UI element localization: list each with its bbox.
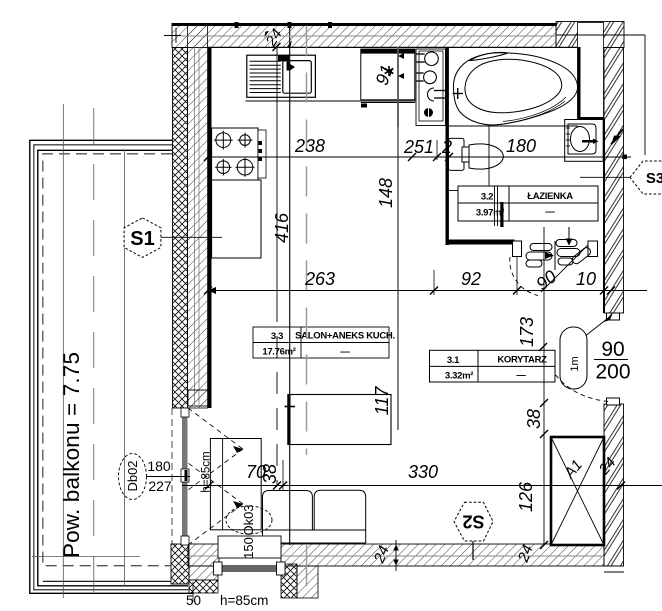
svg-text:251: 251 — [403, 137, 434, 157]
svg-text:SALON+ANEKS KUCH.: SALON+ANEKS KUCH. — [295, 331, 395, 342]
svg-text:238: 238 — [294, 136, 325, 156]
svg-text:ŁAZIENKA: ŁAZIENKA — [527, 191, 573, 202]
svg-text:2: 2 — [441, 137, 452, 157]
svg-text:38: 38 — [524, 409, 544, 429]
svg-text:173: 173 — [517, 317, 537, 347]
svg-text:S3: S3 — [646, 170, 662, 187]
svg-text:h=85cm: h=85cm — [220, 593, 268, 608]
svg-text:117: 117 — [372, 386, 392, 416]
svg-text:3.1: 3.1 — [447, 355, 460, 366]
svg-text:KORYTARZ: KORYTARZ — [497, 355, 547, 366]
svg-text:17.76m²: 17.76m² — [262, 347, 295, 358]
svg-text:50: 50 — [186, 593, 201, 608]
svg-text:90: 90 — [601, 338, 624, 361]
svg-text:3.32m²: 3.32m² — [445, 371, 473, 382]
svg-text:180: 180 — [506, 136, 536, 156]
svg-text:150: 150 — [241, 537, 256, 559]
svg-text:Ok03: Ok03 — [241, 504, 256, 535]
svg-text:3.2: 3.2 — [481, 192, 493, 203]
svg-text:Db02: Db02 — [125, 460, 140, 491]
svg-text:10: 10 — [576, 269, 596, 289]
svg-text:h=85cm: h=85cm — [201, 451, 213, 492]
svg-text:S1: S1 — [130, 228, 154, 250]
svg-text:S2: S2 — [462, 512, 484, 532]
svg-text:148: 148 — [376, 178, 396, 208]
svg-text:Pow. balkonu = 7.75: Pow. balkonu = 7.75 — [59, 352, 84, 558]
svg-text:—: — — [516, 370, 526, 381]
svg-text:263: 263 — [304, 269, 335, 289]
svg-text:—: — — [545, 207, 555, 218]
svg-text:200: 200 — [595, 361, 630, 384]
svg-text:180: 180 — [147, 458, 171, 474]
svg-text:227: 227 — [148, 478, 172, 494]
svg-text:330: 330 — [408, 462, 438, 482]
svg-text:416: 416 — [272, 212, 292, 243]
svg-text:1m: 1m — [569, 356, 581, 371]
svg-text:92: 92 — [461, 269, 481, 289]
svg-text:—: — — [340, 347, 350, 358]
svg-text:126: 126 — [516, 481, 536, 512]
svg-text:3.97m²: 3.97m² — [476, 208, 504, 219]
